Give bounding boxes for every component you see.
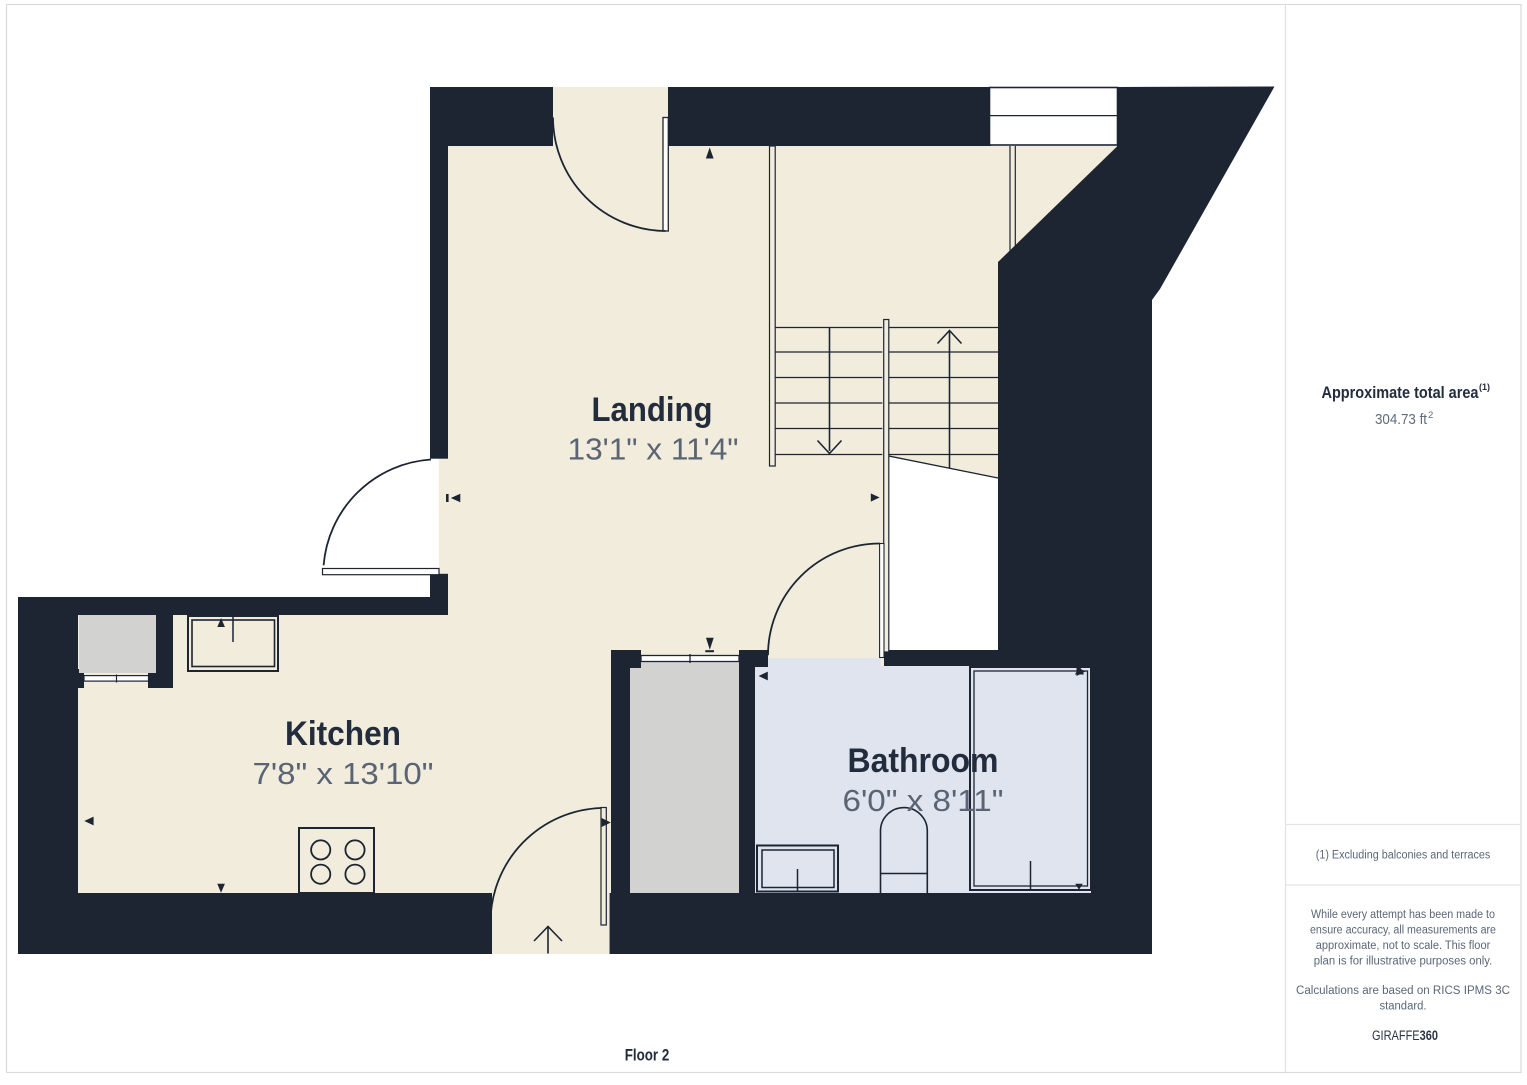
svg-text:Floor 2: Floor 2 (625, 1047, 670, 1065)
svg-text:Approximate total area: Approximate total area (1322, 384, 1480, 402)
svg-text:(1) Excluding balconies and te: (1) Excluding balconies and terraces (1316, 850, 1491, 862)
svg-text:GIRAFFE360: GIRAFFE360 (1372, 1028, 1438, 1043)
svg-text:approximate, not to scale. Thi: approximate, not to scale. This floor (1316, 940, 1491, 952)
svg-text:6'0" x 8'11": 6'0" x 8'11" (843, 783, 1004, 818)
svg-text:standard.: standard. (1380, 1001, 1427, 1013)
svg-text:While every attempt has been m: While every attempt has been made to (1311, 909, 1495, 921)
svg-text:Calculations are based on RICS: Calculations are based on RICS IPMS 3C (1296, 985, 1510, 997)
svg-text:13'1" x 11'4": 13'1" x 11'4" (568, 432, 739, 467)
svg-text:Landing: Landing (592, 391, 713, 429)
svg-text:7'8" x 13'10": 7'8" x 13'10" (253, 756, 434, 791)
svg-text:Bathroom: Bathroom (848, 742, 999, 780)
svg-text:2: 2 (1428, 410, 1433, 421)
svg-text:plan is for illustrative purpo: plan is for illustrative purposes only. (1314, 956, 1493, 968)
svg-text:(1): (1) (1479, 382, 1490, 392)
svg-text:304.73 ft: 304.73 ft (1375, 411, 1428, 428)
svg-text:Kitchen: Kitchen (285, 715, 401, 753)
svg-text:ensure accuracy, all measureme: ensure accuracy, all measurements are (1310, 925, 1496, 937)
